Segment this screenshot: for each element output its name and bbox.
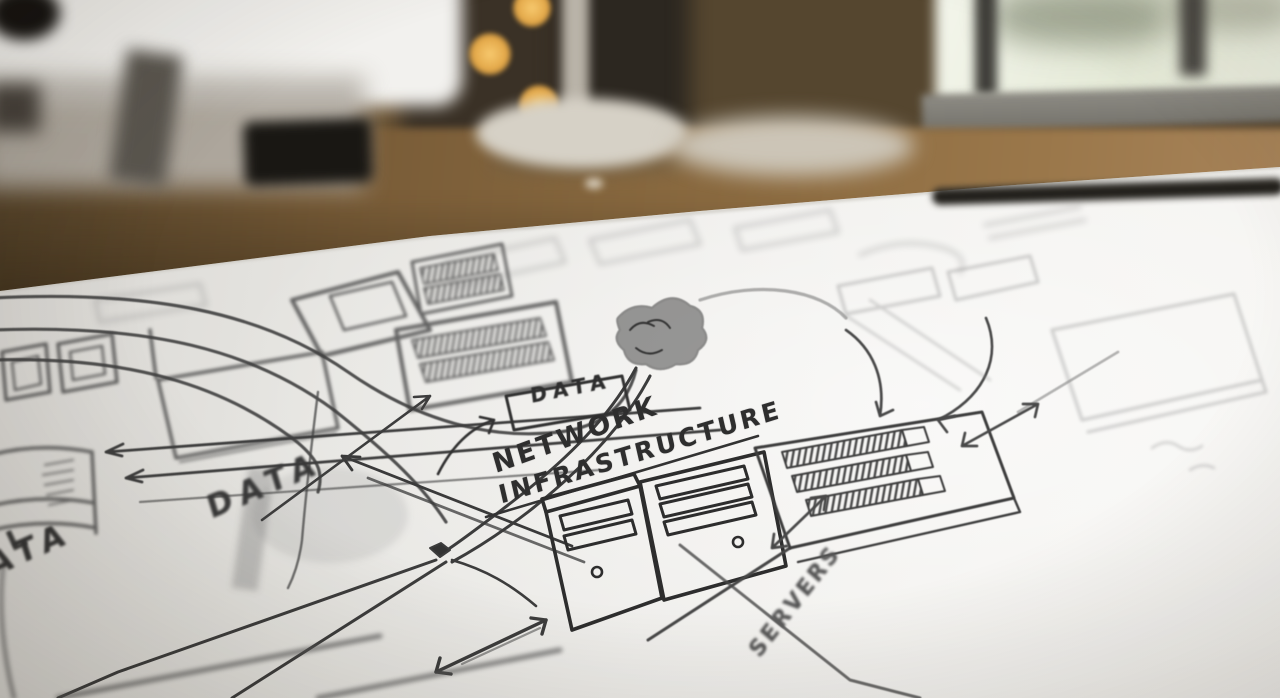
data-table-icon (412, 244, 512, 314)
desk-object (0, 84, 40, 132)
bokeh-light (468, 32, 512, 76)
junction-dot-icon (430, 543, 450, 557)
cloud-node-icon (617, 298, 706, 369)
desk-object (670, 116, 914, 176)
scribble-text (1152, 442, 1214, 470)
desk-highlight (585, 178, 603, 189)
arrow-double-icon (962, 404, 1038, 446)
photo-scene: NETWORK INFRASTRUCTURE DATA DATA L ATA S… (0, 0, 1280, 698)
window-frame-bar (975, 0, 997, 96)
cloud-box-icon (292, 272, 430, 356)
foreground-lines (1, 560, 560, 698)
small-box-icon (2, 344, 50, 400)
lamp-base (476, 98, 688, 168)
window-frame-bar (1180, 0, 1206, 76)
window-tree-blur (990, 0, 1170, 46)
speaker (243, 118, 373, 186)
